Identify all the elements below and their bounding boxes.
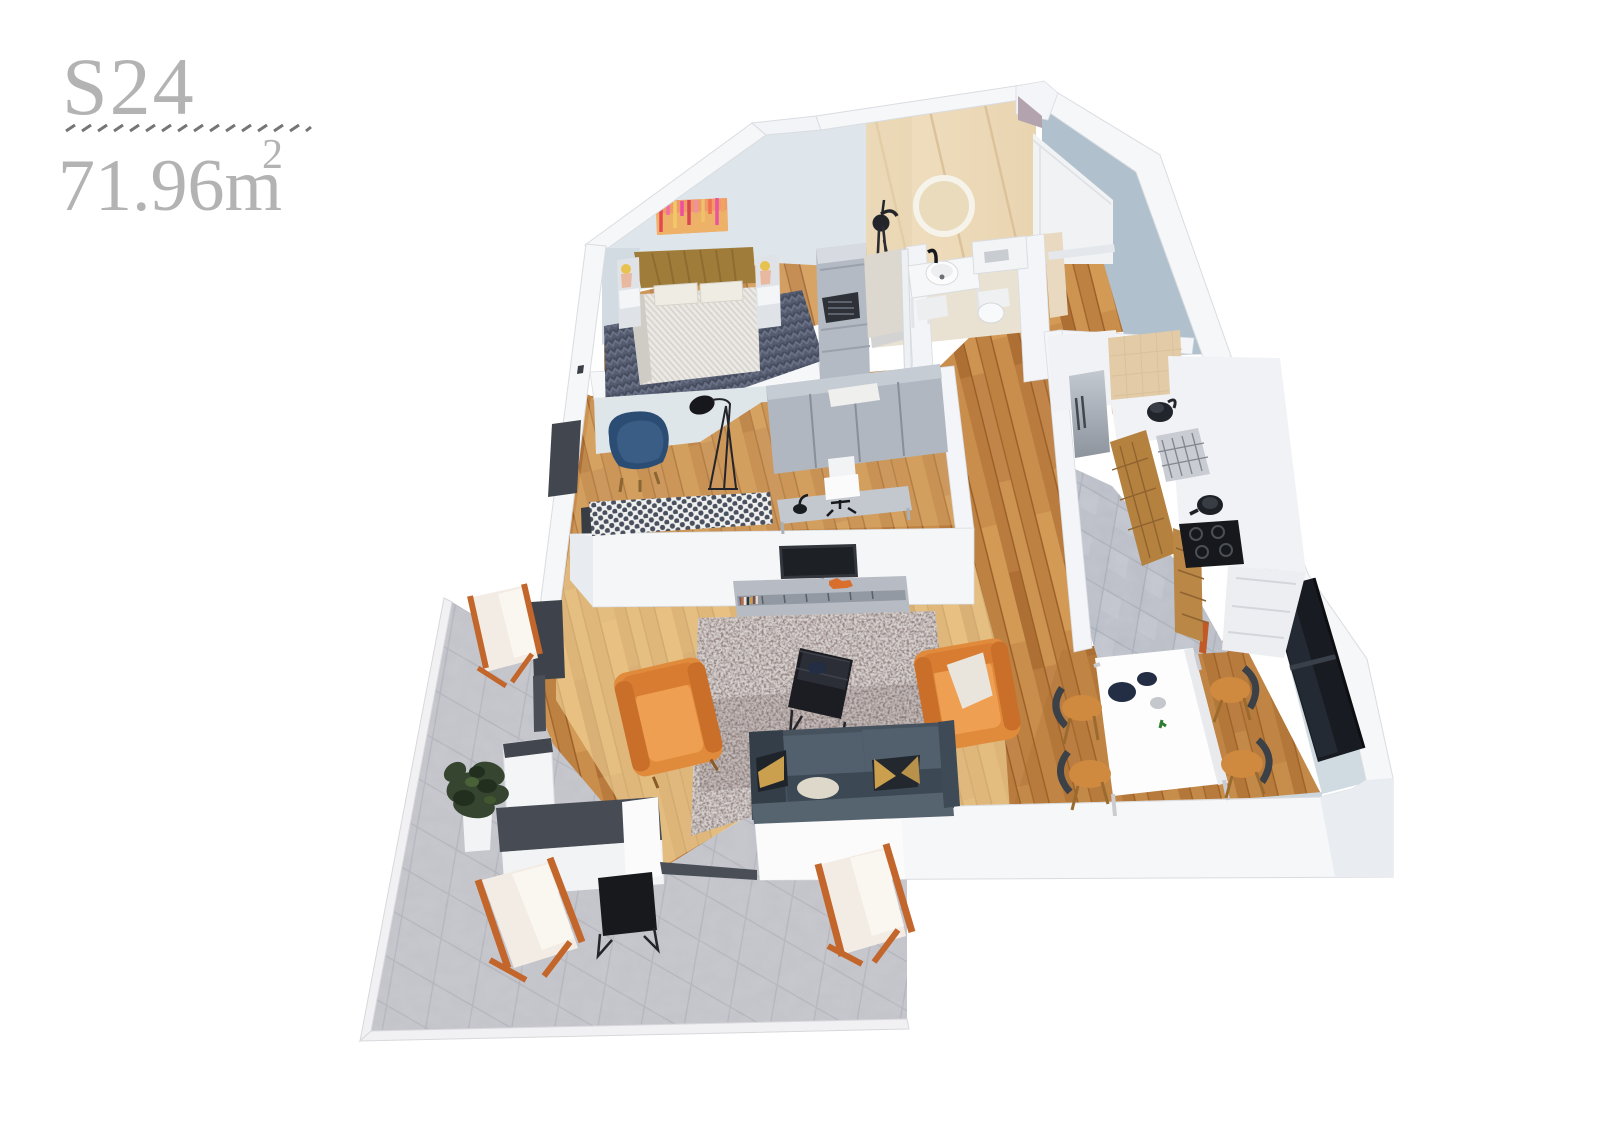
svg-text:71.96m: 71.96m xyxy=(58,145,282,227)
svg-text:2: 2 xyxy=(262,132,283,178)
svg-text:S24: S24 xyxy=(62,41,196,132)
